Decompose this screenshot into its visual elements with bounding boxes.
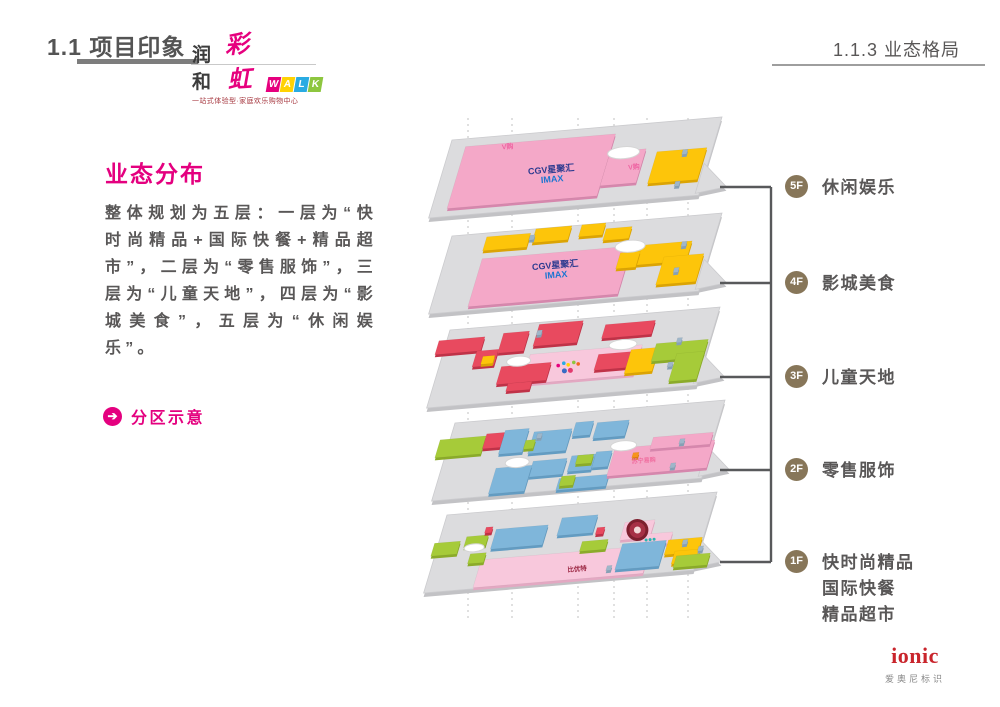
floor-label-text: 零售服饰 bbox=[822, 458, 896, 484]
floor-label-text: 休闲娱乐 bbox=[822, 175, 896, 201]
floor-label-text: 影城美食 bbox=[822, 271, 896, 297]
floor-label-1f: 1F快时尚精品国际快餐精品超市 bbox=[785, 550, 915, 628]
floor-plate-2f: 苏宁易购 bbox=[432, 400, 730, 505]
floor-label-4f: 4F影城美食 bbox=[785, 271, 896, 297]
floor-label-text: 快时尚精品国际快餐精品超市 bbox=[822, 550, 915, 628]
floor-label-2f: 2F零售服饰 bbox=[785, 458, 896, 484]
floor-label-5f: 5F休闲娱乐 bbox=[785, 175, 896, 201]
floor-badge-1f: 1F bbox=[785, 550, 808, 573]
floor-label-3f: 3F儿童天地 bbox=[785, 365, 896, 391]
floor-badge-2f: 2F bbox=[785, 458, 808, 481]
floor-badge-3f: 3F bbox=[785, 365, 808, 388]
floor-plate-5f: V购CGV星聚汇IMAXV购 bbox=[429, 117, 727, 222]
svg-text:IMAX: IMAX bbox=[540, 173, 563, 185]
svg-text:IMAX: IMAX bbox=[544, 269, 567, 281]
footer-brand-subtitle: 爱奥尼标识 bbox=[855, 672, 975, 685]
slide-canvas: 1.1 项目印象 润和 彩虹 WALK 一站式体验型·家庭欢乐购物中心 1.1.… bbox=[0, 0, 1000, 707]
footer-brand-logo: ionic 爱奥尼标识 bbox=[855, 643, 975, 685]
floor-badge-5f: 5F bbox=[785, 175, 808, 198]
floor-label-text: 儿童天地 bbox=[822, 365, 896, 391]
floor-badge-4f: 4F bbox=[785, 271, 808, 294]
floor-plate-1f: 比优特 bbox=[424, 492, 722, 597]
floor-plate-4f: CGV星聚汇IMAX bbox=[429, 213, 727, 318]
floor-plate-3f bbox=[427, 307, 725, 412]
footer-brand-name: ionic bbox=[855, 643, 975, 669]
